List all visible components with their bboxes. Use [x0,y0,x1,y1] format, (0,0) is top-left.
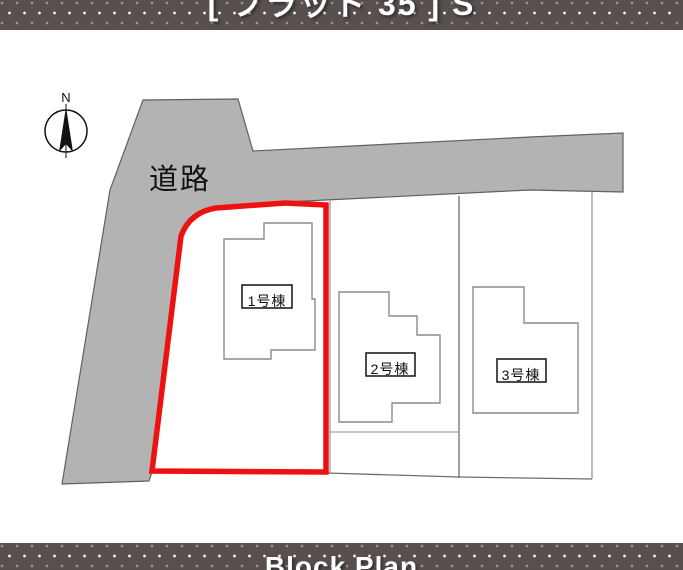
building-2-label: 2号棟 [371,361,410,377]
footer-band: Block Plan [0,543,683,570]
block-plan-drawing: 道路 1号棟 2号棟 3号棟 [0,0,683,570]
compass-north-label: N [61,90,70,105]
road-label: 道路 [149,163,211,196]
house-footprints [224,223,578,422]
house-3-outline [473,287,578,413]
block-plan-page: [ フラット 35 ] S 道路 1号棟 2号棟 [0,0,683,570]
north-compass: N [45,90,87,158]
building-3-label: 3号棟 [502,367,541,383]
footer-title: Block Plan [0,553,683,570]
building-1-label: 1号棟 [248,293,287,309]
